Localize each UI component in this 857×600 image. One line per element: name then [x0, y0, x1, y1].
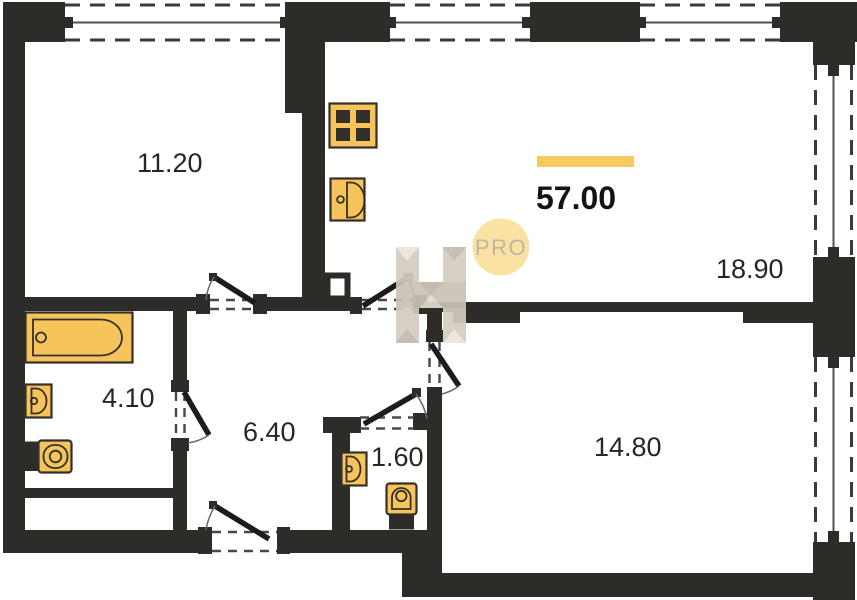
door-leaf [184, 392, 209, 435]
door-bedroom [430, 342, 460, 394]
toilet-tank [22, 442, 39, 472]
door-frame [198, 527, 212, 554]
floorplan: PRO 57.00 11.20 18.90 4.10 6.40 1.60 14.… [0, 0, 857, 600]
door-arc [206, 506, 215, 530]
door-leaf-tip [209, 501, 217, 509]
room-area-label-1-60: 1.60 [371, 442, 424, 472]
duct-shaft [328, 276, 348, 299]
bath-sink-icon [26, 385, 52, 418]
room-area-label-4-10: 4.10 [102, 383, 155, 413]
door-leaf [431, 344, 459, 386]
door-room-11-20 [206, 273, 255, 309]
wc-toilet-icon [387, 484, 417, 530]
window-right-bedroom [816, 357, 852, 542]
window-terminal [772, 17, 783, 28]
area-accent-line [537, 156, 634, 167]
door-arc [442, 386, 459, 394]
door-frame [426, 330, 443, 342]
wall-segment [173, 310, 187, 382]
window-terminal [828, 65, 839, 76]
floorplan-canvas: PRO 57.00 11.20 18.90 4.10 6.40 1.60 14.… [0, 0, 857, 600]
toilet-pedestal [389, 515, 414, 530]
wall-segment [3, 530, 205, 553]
door-entrance [206, 501, 277, 551]
window-top-right [635, 5, 783, 40]
stove-burner [336, 110, 350, 123]
room-area-label-11-20: 11.20 [137, 148, 203, 178]
wall-segment [3, 2, 65, 42]
window-terminal [635, 17, 646, 28]
bath-toilet-icon [22, 441, 72, 473]
door-frame [171, 380, 189, 392]
window-terminal [828, 531, 839, 542]
room-area-label-14-80: 14.80 [594, 432, 662, 462]
window-terminal [828, 357, 839, 368]
wall-segment [3, 2, 25, 553]
stove-burner [356, 128, 370, 141]
wall-segment [22, 488, 177, 498]
window-right-living [816, 65, 852, 258]
stove-burner [336, 128, 350, 141]
wall-segment [813, 257, 855, 357]
bathtub-icon [26, 313, 133, 363]
pro-badge-label: PRO [475, 235, 527, 260]
total-area-label: 57.00 [536, 180, 616, 216]
window-terminal [280, 17, 291, 28]
room-area-label-18-90: 18.90 [716, 254, 784, 284]
wall-segment [323, 417, 361, 433]
wall-segment [285, 2, 390, 42]
door-bathroom [176, 392, 209, 443]
kitchen-sink-icon [331, 179, 365, 221]
wall-segment [530, 2, 640, 42]
door-leaf [215, 506, 269, 539]
window-terminal [62, 17, 73, 28]
door-frame [196, 294, 210, 314]
room-area-label-6-40: 6.40 [243, 417, 296, 447]
door-arc [188, 435, 209, 443]
stove-icon [330, 104, 377, 148]
door-frame [253, 294, 267, 314]
wc-sink-icon [342, 453, 367, 486]
window-terminal [522, 17, 533, 28]
wall-segment [25, 297, 198, 311]
wall-segment [402, 573, 855, 597]
door-frame [277, 527, 290, 554]
window-terminal [385, 17, 396, 28]
window-top-middle [385, 5, 533, 40]
door-leaf [364, 394, 416, 424]
window-terminal [828, 247, 839, 258]
pro-badge: PRO [473, 219, 530, 276]
wall-segment [813, 2, 855, 65]
window-top-left [62, 5, 291, 40]
wall-segment [743, 302, 813, 323]
door-frame [413, 413, 430, 430]
door-frame [350, 297, 362, 314]
wall-segment [302, 42, 325, 302]
wall-segment [277, 530, 420, 553]
stove-burner [356, 110, 370, 123]
